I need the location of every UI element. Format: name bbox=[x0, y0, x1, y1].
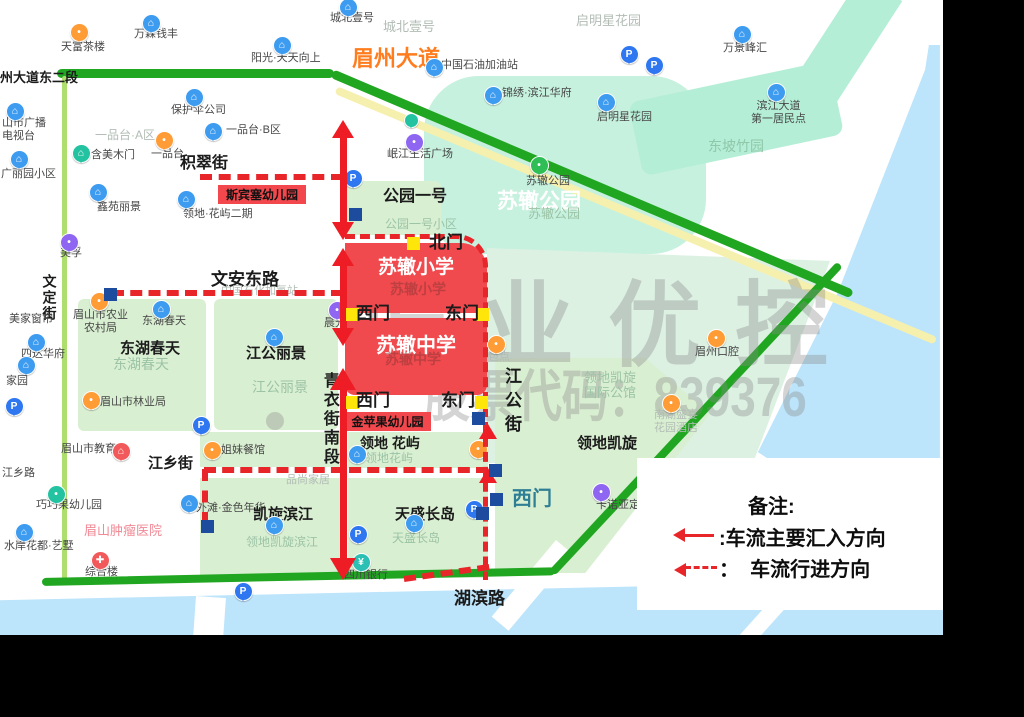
map-canvas: 振业优控 股票代码：839376 州大道东二段眉州大道天富茶楼万霖钱丰阳光·天天… bbox=[0, 0, 943, 635]
flow-dashed-line bbox=[112, 290, 343, 296]
gate-marker-yellow bbox=[407, 237, 420, 250]
entry-marker-blue bbox=[476, 507, 489, 520]
kindergarten-label-box: 斯宾塞幼儿园 bbox=[218, 185, 306, 204]
legend: 备注: :车流主要汇入方向 ： 车流行进方向 bbox=[637, 458, 943, 610]
main-flow-arrowhead-down bbox=[332, 328, 354, 346]
main-flow-arrow-line bbox=[340, 386, 347, 562]
gate-marker-yellow bbox=[475, 396, 488, 409]
entry-marker-blue bbox=[104, 288, 117, 301]
entry-marker-blue bbox=[472, 412, 485, 425]
main-flow-arrow-line bbox=[340, 262, 347, 332]
gate-label: 北门 bbox=[429, 233, 463, 253]
entry-marker-blue bbox=[349, 208, 362, 221]
main-flow-arrowhead-up bbox=[330, 368, 356, 390]
gate-label: 西门 bbox=[356, 391, 390, 411]
main-flow-arrowhead-up bbox=[332, 248, 354, 266]
main-flow-arrowhead-up bbox=[332, 120, 354, 138]
flow-dashed-line bbox=[202, 469, 208, 524]
legend-dashed-left-arrow-icon bbox=[685, 566, 717, 569]
entry-marker-blue bbox=[489, 464, 502, 477]
gate-label: 西门 bbox=[356, 304, 390, 324]
main-flow-arrowhead-down bbox=[332, 222, 354, 240]
legend-item-label: ： 车流行进方向 bbox=[719, 553, 870, 582]
main-flow-arrow-line bbox=[340, 134, 347, 226]
legend-item-label: :车流主要汇入方向 bbox=[719, 522, 886, 551]
gate-label: 西门 bbox=[512, 488, 552, 512]
flow-dashed-line bbox=[200, 174, 343, 180]
entry-marker-blue bbox=[201, 520, 214, 533]
gate-label: 东门 bbox=[441, 391, 475, 411]
gate-label: 东门 bbox=[445, 304, 479, 324]
entry-marker-blue bbox=[490, 493, 503, 506]
main-flow-arrowhead-down bbox=[330, 558, 356, 580]
screenshot-frame: 振业优控 股票代码：839376 州大道东二段眉州大道天富茶楼万霖钱丰阳光·天天… bbox=[0, 0, 1024, 717]
flow-arrowhead-up bbox=[479, 424, 497, 439]
legend-title: 备注: bbox=[748, 490, 795, 519]
legend-solid-left-arrow-icon bbox=[684, 534, 714, 537]
